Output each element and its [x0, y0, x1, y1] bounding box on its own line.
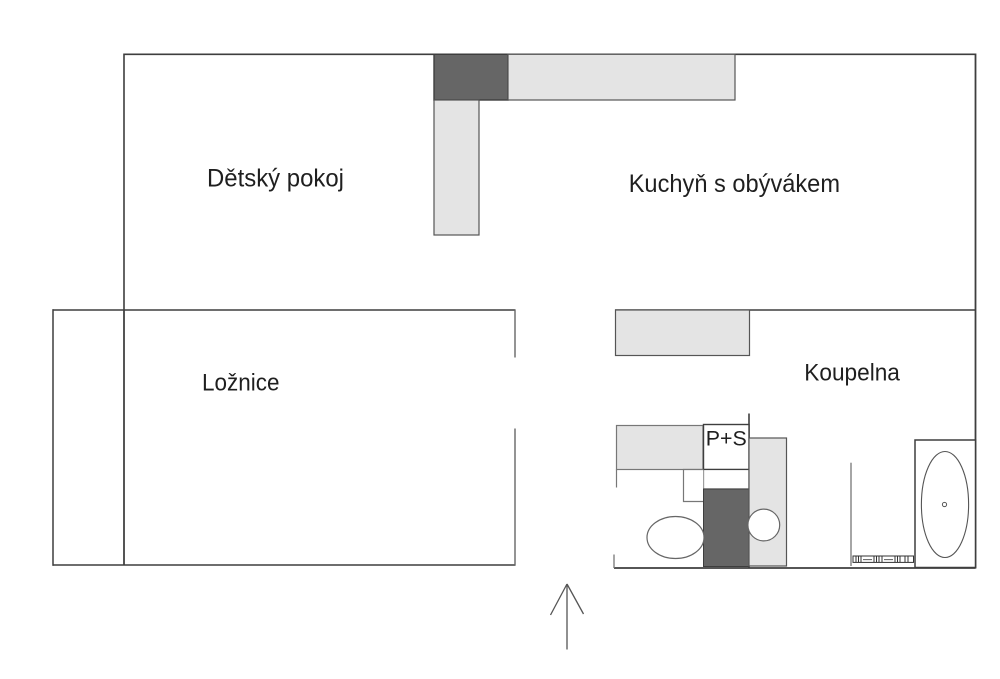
svg-text:Ložnice: Ložnice — [202, 370, 280, 397]
svg-text:Dětský pokoj: Dětský pokoj — [207, 165, 344, 193]
svg-text:P+S: P+S — [706, 427, 747, 450]
svg-text:Koupelna: Koupelna — [804, 360, 900, 387]
svg-text:Kuchyň s obývákem: Kuchyň s obývákem — [629, 170, 840, 198]
